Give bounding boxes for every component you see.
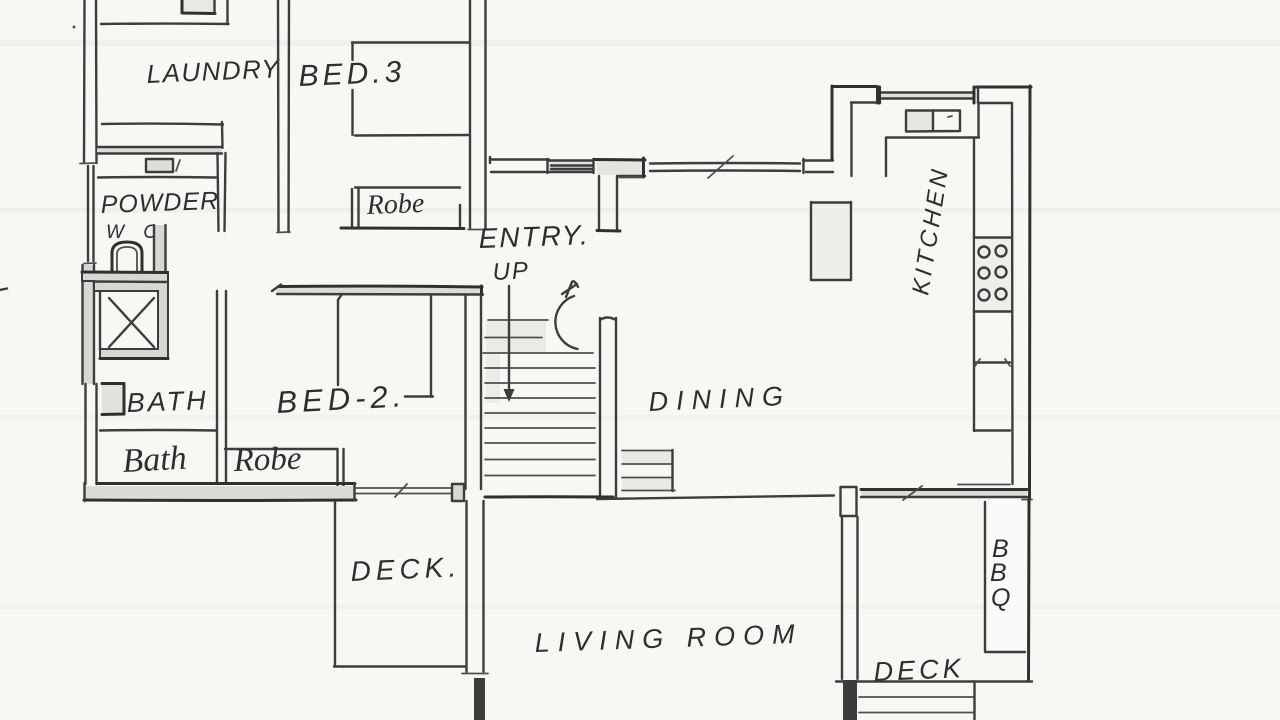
svg-text:Robe: Robe [232, 441, 302, 479]
svg-text:ENTRY.: ENTRY. [478, 219, 590, 254]
svg-text:DECK.: DECK. [350, 551, 462, 587]
svg-text:BATH: BATH [126, 385, 209, 418]
svg-text:LAUNDRY: LAUNDRY [146, 53, 281, 89]
svg-text:DINING: DINING [648, 381, 792, 417]
svg-text:BED-2.: BED-2. [276, 378, 408, 420]
svg-text:Bath: Bath [121, 440, 187, 480]
svg-text:DECK: DECK [873, 653, 965, 687]
svg-text:B: B [990, 559, 1007, 587]
svg-text:Robe: Robe [365, 188, 425, 221]
svg-text:Q: Q [991, 584, 1010, 612]
svg-text:UP: UP [492, 257, 531, 286]
svg-text:POWDER: POWDER [100, 187, 219, 219]
